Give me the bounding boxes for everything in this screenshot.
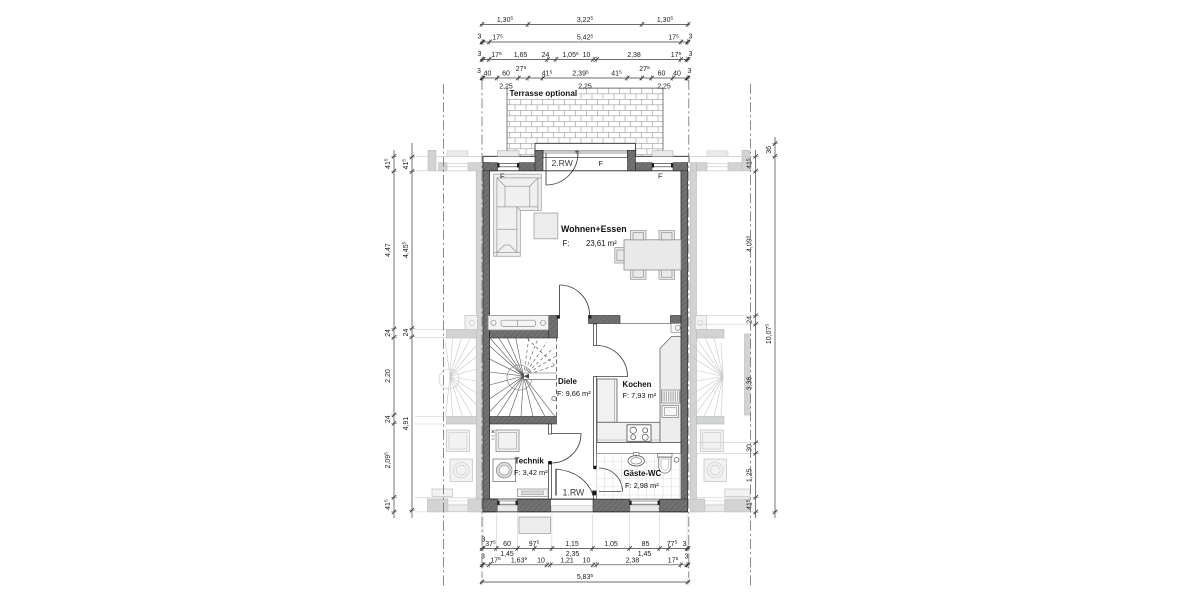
svg-text:10: 10	[583, 52, 591, 59]
svg-text:10,075: 10,075	[765, 324, 773, 345]
svg-text:Kochen: Kochen	[623, 380, 652, 389]
svg-text:Gäste-WC: Gäste-WC	[624, 469, 662, 478]
svg-text:1,15: 1,15	[565, 541, 579, 548]
svg-text:Technik: Technik	[515, 457, 545, 466]
svg-text:2,25: 2,25	[578, 84, 592, 91]
svg-text:Diele: Diele	[558, 377, 577, 386]
svg-text:2,25: 2,25	[499, 84, 513, 91]
svg-text:24: 24	[385, 329, 392, 337]
svg-text:10: 10	[537, 557, 545, 564]
svg-text:2,38: 2,38	[627, 52, 641, 59]
svg-text:4,47: 4,47	[385, 243, 392, 257]
svg-text:3: 3	[477, 68, 481, 75]
svg-text:40: 40	[673, 70, 681, 77]
svg-text:10: 10	[583, 557, 591, 564]
svg-text:F: 3,42 m²: F: 3,42 m²	[514, 468, 548, 477]
svg-text:60: 60	[502, 70, 510, 77]
svg-text:Wohnen+Essen: Wohnen+Essen	[561, 224, 627, 234]
svg-text:3: 3	[683, 541, 687, 548]
svg-text:2,25: 2,25	[657, 84, 671, 91]
svg-text:3: 3	[685, 554, 689, 561]
svg-text:60: 60	[503, 541, 511, 548]
svg-text:1,05: 1,05	[604, 541, 618, 548]
svg-text:F:: F:	[563, 239, 570, 248]
svg-text:2.RW: 2.RW	[552, 158, 574, 168]
svg-text:24: 24	[542, 52, 550, 59]
svg-text:F: F	[599, 159, 604, 168]
svg-text:2,20: 2,20	[385, 369, 392, 383]
svg-text:3: 3	[478, 51, 482, 58]
svg-text:30: 30	[747, 444, 754, 452]
svg-text:F: 9,66 m²: F: 9,66 m²	[557, 389, 591, 398]
svg-text:3: 3	[688, 68, 692, 75]
svg-text:3: 3	[478, 34, 482, 41]
svg-text:2,38: 2,38	[626, 557, 640, 564]
svg-text:1,65: 1,65	[514, 52, 528, 59]
svg-text:60: 60	[658, 70, 666, 77]
svg-text:85: 85	[642, 541, 650, 548]
svg-text:F: F	[500, 172, 505, 181]
svg-text:1.RW: 1.RW	[563, 488, 586, 498]
svg-text:F: 7,93 m²: F: 7,93 m²	[623, 391, 657, 400]
svg-text:1,25: 1,25	[747, 468, 754, 482]
svg-text:24: 24	[403, 329, 410, 337]
svg-text:1,21: 1,21	[560, 557, 574, 564]
svg-text:F: 2,98 m²: F: 2,98 m²	[625, 481, 659, 490]
svg-text:Terrasse optional: Terrasse optional	[510, 89, 578, 98]
svg-text:23,61 m²: 23,61 m²	[586, 239, 617, 248]
svg-text:4,91: 4,91	[403, 417, 410, 431]
svg-text:24: 24	[747, 316, 754, 324]
svg-text:3,36: 3,36	[747, 376, 754, 390]
svg-text:3: 3	[689, 34, 693, 41]
svg-text:36: 36	[766, 146, 773, 154]
svg-text:40: 40	[484, 70, 492, 77]
svg-text:F: F	[658, 172, 663, 181]
svg-text:3: 3	[689, 51, 693, 58]
svg-text:1,45: 1,45	[638, 551, 652, 558]
svg-text:24: 24	[385, 415, 392, 423]
